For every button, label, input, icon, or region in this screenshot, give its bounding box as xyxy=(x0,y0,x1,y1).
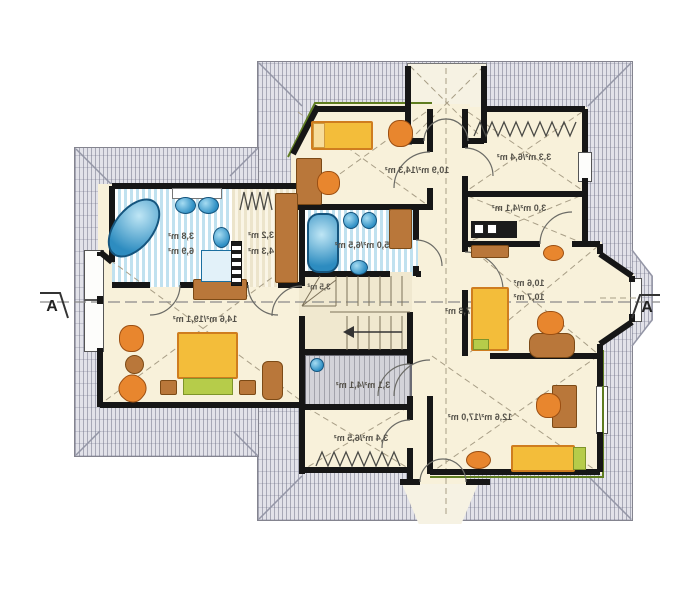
table-right-room xyxy=(529,333,575,358)
label-utility: 3,0 m²/4,1 m² xyxy=(492,203,547,213)
pouf-bottom-right xyxy=(466,451,491,469)
washer-icon xyxy=(474,224,484,234)
hanger-rail-top-wardrobe xyxy=(474,122,576,136)
label-stairs: 3,5 m² xyxy=(307,282,330,291)
label-right-room-2: 10,7 m² xyxy=(513,292,544,302)
label-right-room-1: 10,6 m² xyxy=(513,278,544,288)
sink-bath-center xyxy=(350,260,368,275)
toilet-bath-left xyxy=(213,227,230,248)
pillow-top-bedroom xyxy=(313,123,325,148)
pouf-hall xyxy=(543,245,564,261)
label-wardrobe-top: 3,3 m²/6,4 m² xyxy=(497,152,552,162)
shelf-unit-small-room xyxy=(231,241,242,286)
label-master-bedroom: 14,6 m²/19,1 m² xyxy=(173,314,238,324)
label-bath-left-1: 3,8 m² xyxy=(168,231,194,241)
label-small-left-1: 3,2 m² xyxy=(248,230,274,240)
label-storage: 3,1 m²/4,1 m² xyxy=(336,380,391,390)
armchair-3-master xyxy=(262,361,283,400)
dryer-icon xyxy=(487,224,497,234)
floor-plan-canvas: 10,9 m²/14,3 m² 3,3 m²/6,4 m² 3,0 m²/4,1… xyxy=(0,0,700,593)
green-mat-bottom-right xyxy=(573,447,586,470)
bed-bottom-right xyxy=(511,445,575,472)
sink-1-bath-left xyxy=(175,197,196,214)
label-wardrobe-bottom: 3,4 m²/6,5 m² xyxy=(334,433,389,443)
armchair-top-bedroom xyxy=(388,120,413,147)
chair-bottom-right xyxy=(536,393,561,418)
armchair-1-master xyxy=(119,325,144,352)
label-top-bedroom: 10,9 m²/14,3 m² xyxy=(385,165,450,175)
cabinet-bath-center xyxy=(389,209,412,249)
sink-storage xyxy=(310,358,324,372)
desk-chair-top-bedroom xyxy=(317,171,340,195)
bidet-bath-center xyxy=(361,212,377,229)
bed-master xyxy=(177,332,238,379)
radiator-zigzag xyxy=(240,192,272,210)
stair-arrow-head xyxy=(343,326,354,338)
section-marker-right-label: A xyxy=(641,299,653,317)
tall-wardrobe-small-room xyxy=(275,193,298,283)
label-small-left-2: 4,3 m² xyxy=(248,246,274,256)
sideboard-right-room xyxy=(471,245,509,258)
chair-right-room xyxy=(537,311,564,335)
hanger-rail-bottom-wardrobe xyxy=(316,452,400,466)
nightstand-left-master xyxy=(160,380,177,395)
label-hall: 7,8 m² xyxy=(445,306,471,316)
green-shelf-right-room xyxy=(473,339,489,350)
toilet-bath-center xyxy=(343,212,359,229)
label-bottom-right-room: 12,6 m²/17,0 m² xyxy=(448,412,513,422)
walls-layer xyxy=(0,0,700,593)
label-bath-left-2: 6,9 m² xyxy=(168,246,194,256)
sink-2-bath-left xyxy=(198,197,219,214)
round-table-master xyxy=(125,355,144,374)
bench-master xyxy=(183,378,233,395)
nightstand-right-master xyxy=(239,380,256,395)
section-marker-left-label: A xyxy=(46,298,58,316)
shower-bath-left xyxy=(201,250,233,282)
label-bath-center: 5,0 m²/6,5 m² xyxy=(335,240,390,250)
